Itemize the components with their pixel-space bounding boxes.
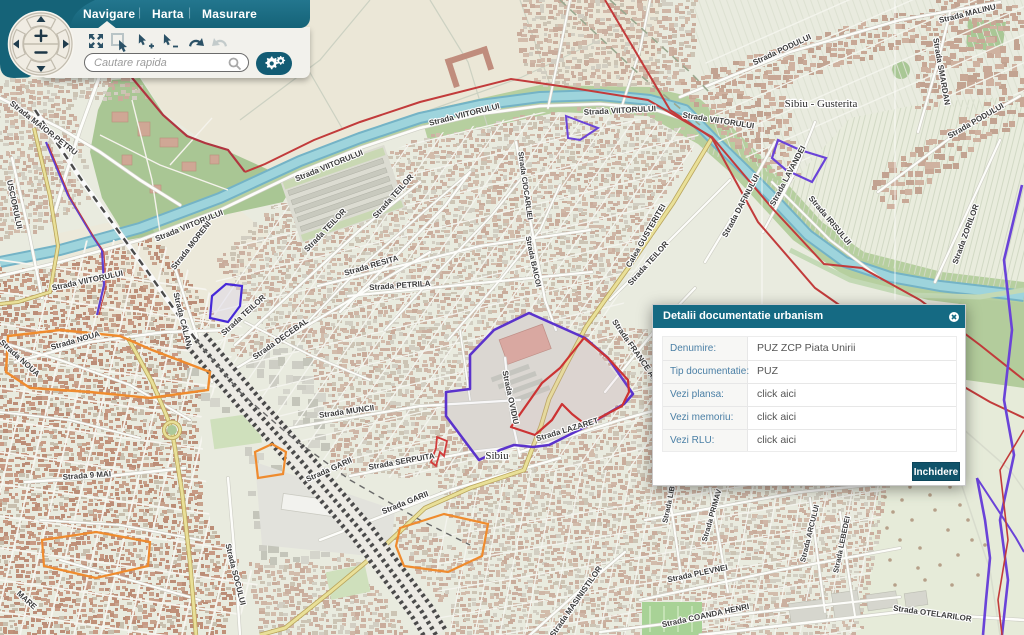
svg-text:Sibiu: Sibiu xyxy=(485,450,509,462)
svg-text:Sibiu - Gusterita: Sibiu - Gusterita xyxy=(785,98,858,110)
